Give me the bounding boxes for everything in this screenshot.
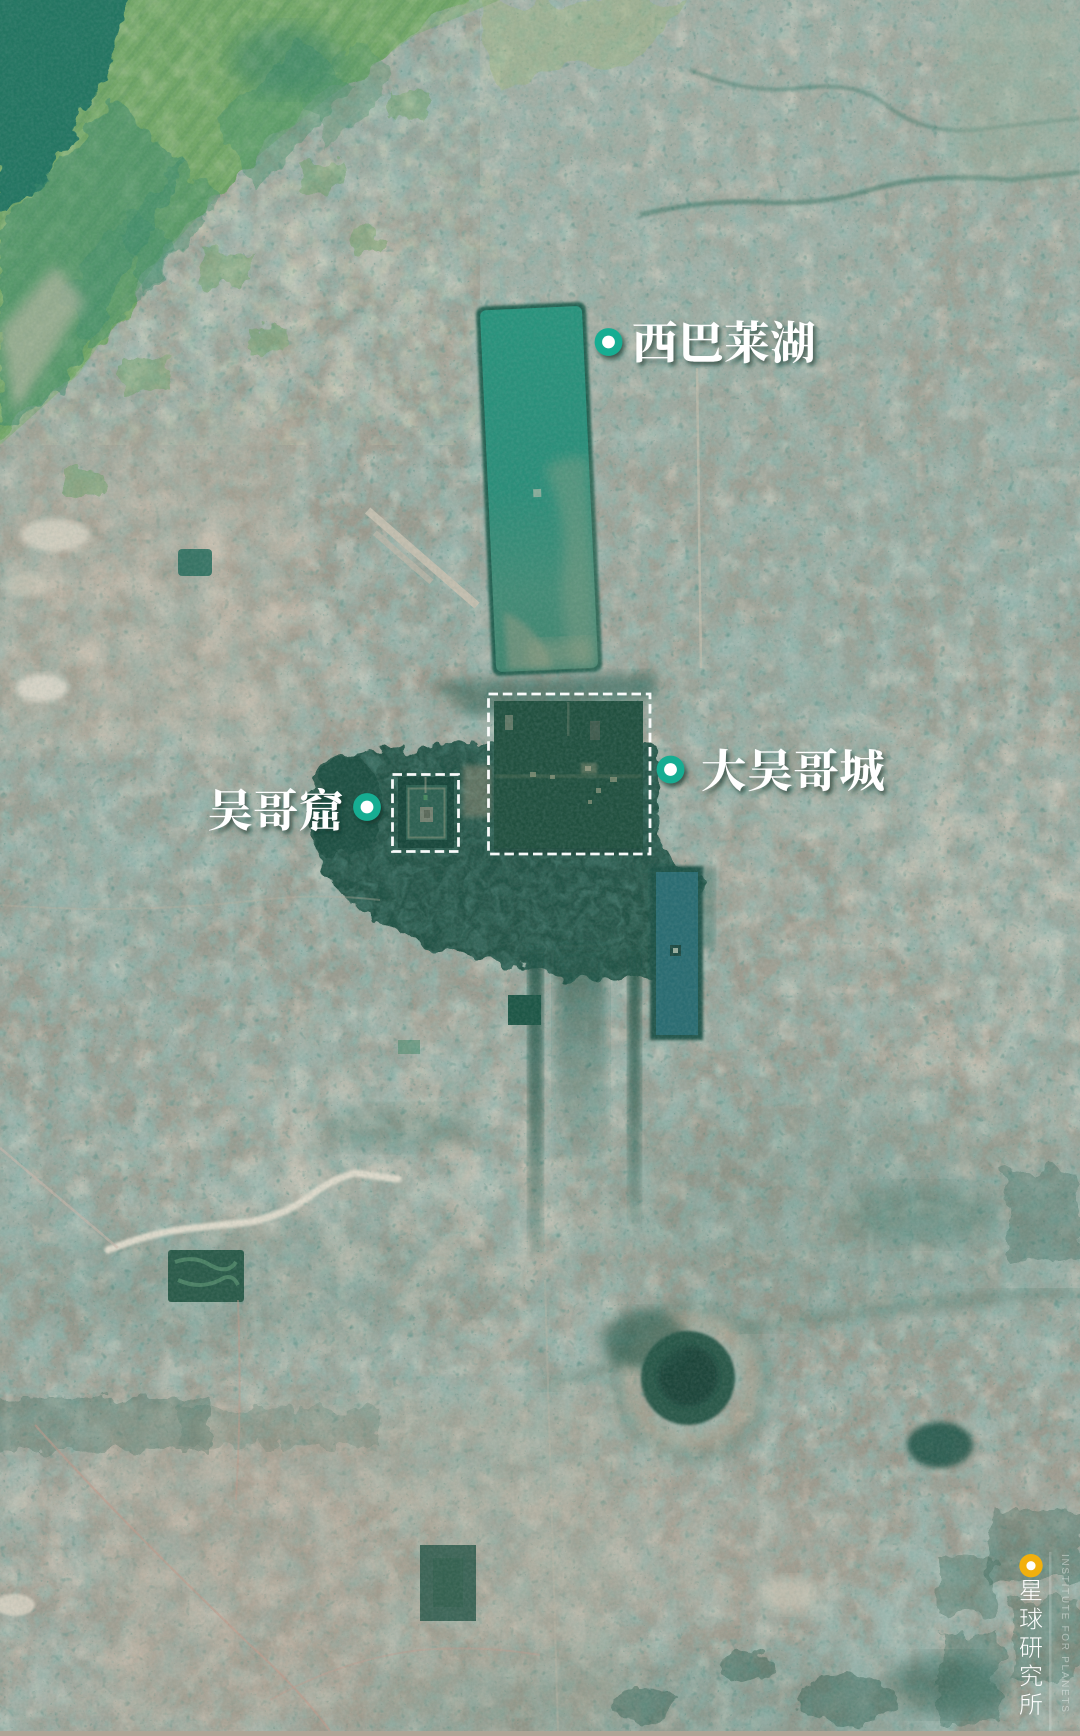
svg-text:INSTITUTE FOR PLANETS: INSTITUTE FOR PLANETS bbox=[1059, 1554, 1070, 1714]
